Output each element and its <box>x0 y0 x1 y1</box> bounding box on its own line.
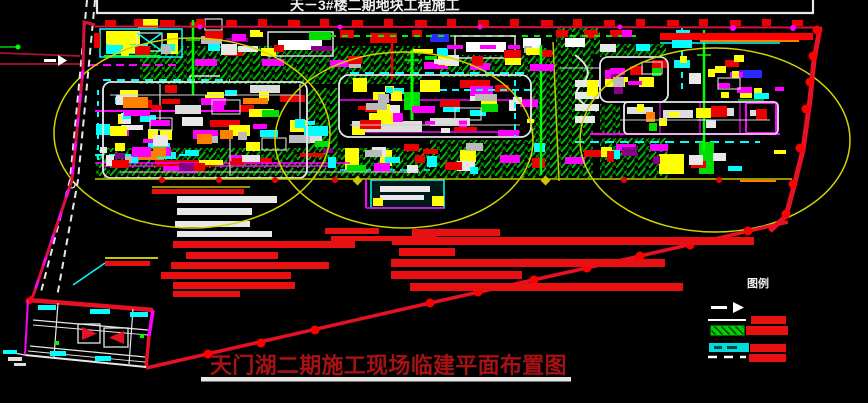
svg-text:天门湖二期施工现场临建平面布置图: 天门湖二期施工现场临建平面布置图 <box>210 353 567 378</box>
svg-text:天－3#楼二期地块工程施工: 天－3#楼二期地块工程施工 <box>290 0 460 13</box>
svg-text:图例: 图例 <box>747 276 769 290</box>
